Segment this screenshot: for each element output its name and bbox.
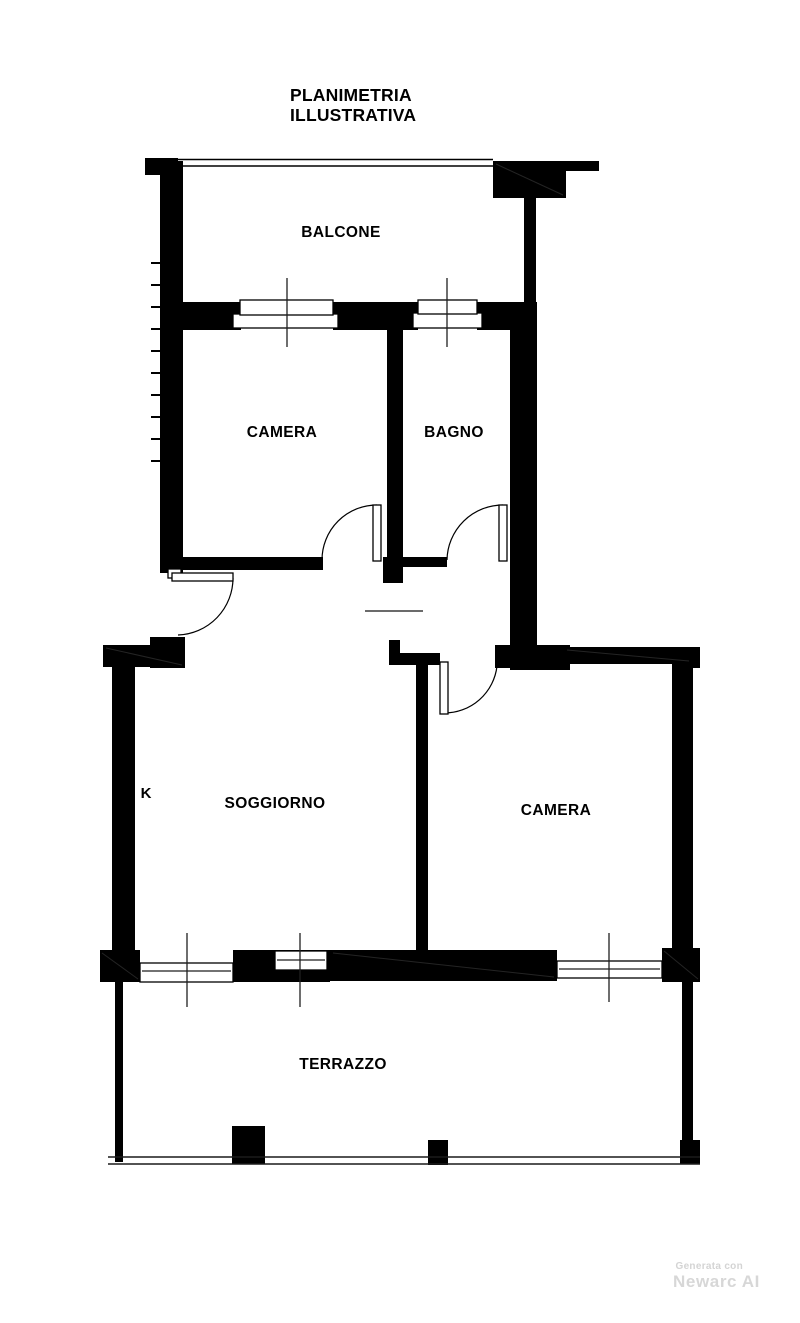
room-label-bagno: BAGNO: [424, 424, 484, 441]
terrazzo-corner-block: [680, 1140, 700, 1164]
terrazzo-left-wall: [115, 982, 123, 1162]
terrazzo-post: [428, 1140, 448, 1165]
room-label-terrazzo: TERRAZZO: [299, 1056, 387, 1073]
window-sill: [233, 314, 338, 328]
room-label-camera-lower: CAMERA: [521, 802, 591, 819]
door-bagno: [447, 505, 507, 561]
right-wall-upper: [510, 302, 537, 668]
camera-bottom-wall: [182, 557, 323, 570]
window-bagno: [413, 278, 482, 347]
wall-segment: [233, 950, 272, 982]
window-soggiorno-left: [140, 933, 233, 1007]
left-wall-lower: [112, 645, 135, 955]
wall-segment: [565, 161, 599, 171]
left-wall-ticks: [151, 263, 160, 461]
wall-segment: [161, 302, 241, 330]
door-leaf: [440, 662, 448, 714]
wall-segment: [389, 653, 440, 665]
window-camera-lower: [557, 933, 662, 1002]
wall-segment: [524, 198, 536, 304]
door-swing-arc: [178, 578, 233, 635]
door-leaf: [499, 505, 507, 561]
upper-rooms-walls: [161, 302, 537, 668]
room-label-balcone: BALCONE: [301, 224, 380, 241]
bagno-bottom-wall: [400, 557, 447, 567]
floor-plan-page: PLANIMETRIA ILLUSTRATIVA: [0, 0, 800, 1323]
door-swing-arc: [322, 505, 377, 560]
wall-segment: [333, 302, 418, 330]
terrazzo-right-wall: [682, 978, 693, 1158]
door-swing-arc: [444, 666, 497, 713]
right-wall-lower: [672, 663, 693, 955]
plan-title-line2: ILLUSTRATIVA: [290, 105, 416, 125]
window-soggiorno-door: [275, 933, 327, 1007]
wall-segment: [495, 645, 510, 668]
watermark-line2: Newarc AI: [673, 1272, 760, 1291]
wall-pillar: [383, 557, 400, 583]
camera-bagno-divider-wall: [387, 325, 403, 583]
camera-top-wall: [510, 645, 570, 670]
door-leaf: [373, 505, 381, 561]
room-label-soggiorno: SOGGIORNO: [225, 795, 326, 812]
door-soggiorno-entry: [168, 569, 233, 635]
lower-rooms-walls: [103, 637, 700, 955]
floor-plan-drawing: PLANIMETRIA ILLUSTRATIVA: [0, 0, 800, 1323]
watermark: Generata con Newarc AI: [673, 1261, 760, 1291]
door-camera-lower: [440, 662, 497, 714]
room-label-camera-upper: CAMERA: [247, 424, 317, 441]
plan-title-line1: PLANIMETRIA: [290, 85, 412, 105]
left-exterior-wall: [160, 161, 183, 573]
terrazzo-post: [232, 1126, 265, 1164]
window-camera-upper: [233, 278, 338, 347]
door-camera-upper: [322, 505, 381, 561]
soggiorno-camera-divider-wall: [416, 660, 428, 955]
room-label-kitchen: K: [141, 785, 152, 802]
door-swing-arc: [447, 505, 503, 560]
watermark-line1: Generata con: [675, 1261, 743, 1272]
terrazzo-walls: [108, 978, 700, 1165]
door-leaf: [172, 573, 233, 581]
